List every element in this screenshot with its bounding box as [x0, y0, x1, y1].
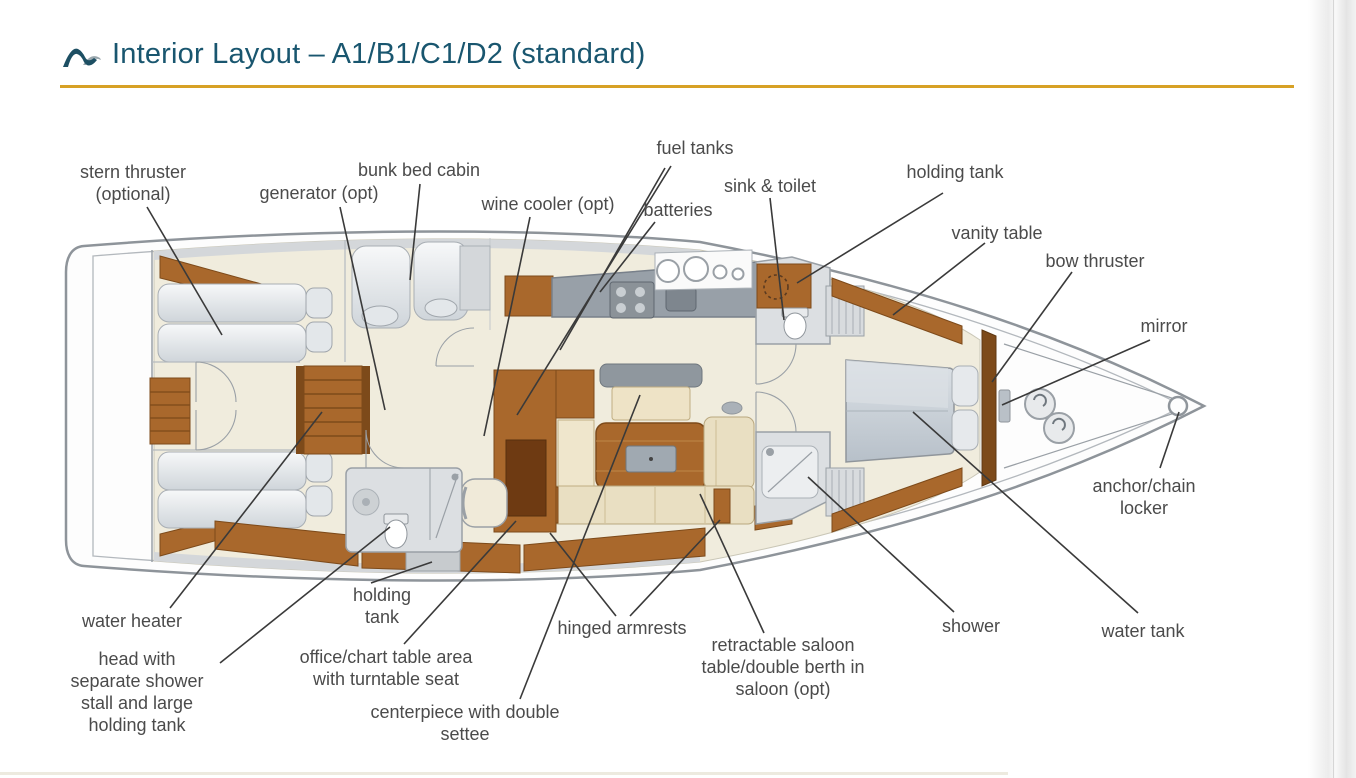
label-stern-thruster: stern thruster (optional)	[80, 161, 186, 205]
label-batteries: batteries	[643, 199, 712, 221]
label-fuel-tanks: fuel tanks	[656, 137, 733, 159]
label-generator: generator (opt)	[259, 182, 378, 204]
label-head-with-shower: head with separate shower stall and larg…	[70, 648, 203, 736]
label-water-heater: water heater	[82, 610, 182, 632]
page-edge-line	[1333, 0, 1334, 778]
label-mirror: mirror	[1141, 315, 1188, 337]
label-bunk-bed-cabin: bunk bed cabin	[358, 159, 480, 181]
label-wine-cooler: wine cooler (opt)	[481, 193, 614, 215]
bottom-partial-rule	[0, 772, 1008, 775]
label-anchor-chain-locker: anchor/chain locker	[1092, 475, 1195, 519]
label-centerpiece: centerpiece with double settee	[370, 701, 559, 745]
label-retractable-table: retractable saloon table/double berth in…	[701, 634, 864, 700]
label-bow-thruster: bow thruster	[1045, 250, 1144, 272]
label-sink-toilet: sink & toilet	[724, 175, 816, 197]
stern-platform	[150, 378, 190, 444]
companionway-stairs	[296, 366, 370, 454]
label-hinged-armrests: hinged armrests	[557, 617, 686, 639]
label-shower: shower	[942, 615, 1000, 637]
label-holding-tank-aft: holding tank	[353, 584, 411, 628]
label-vanity-table: vanity table	[951, 222, 1042, 244]
label-water-tank: water tank	[1101, 620, 1184, 642]
leader-holding-tank-fwd	[797, 193, 943, 283]
label-office-chart-table: office/chart table area with turntable s…	[300, 646, 473, 690]
label-holding-tank-fwd: holding tank	[906, 161, 1003, 183]
